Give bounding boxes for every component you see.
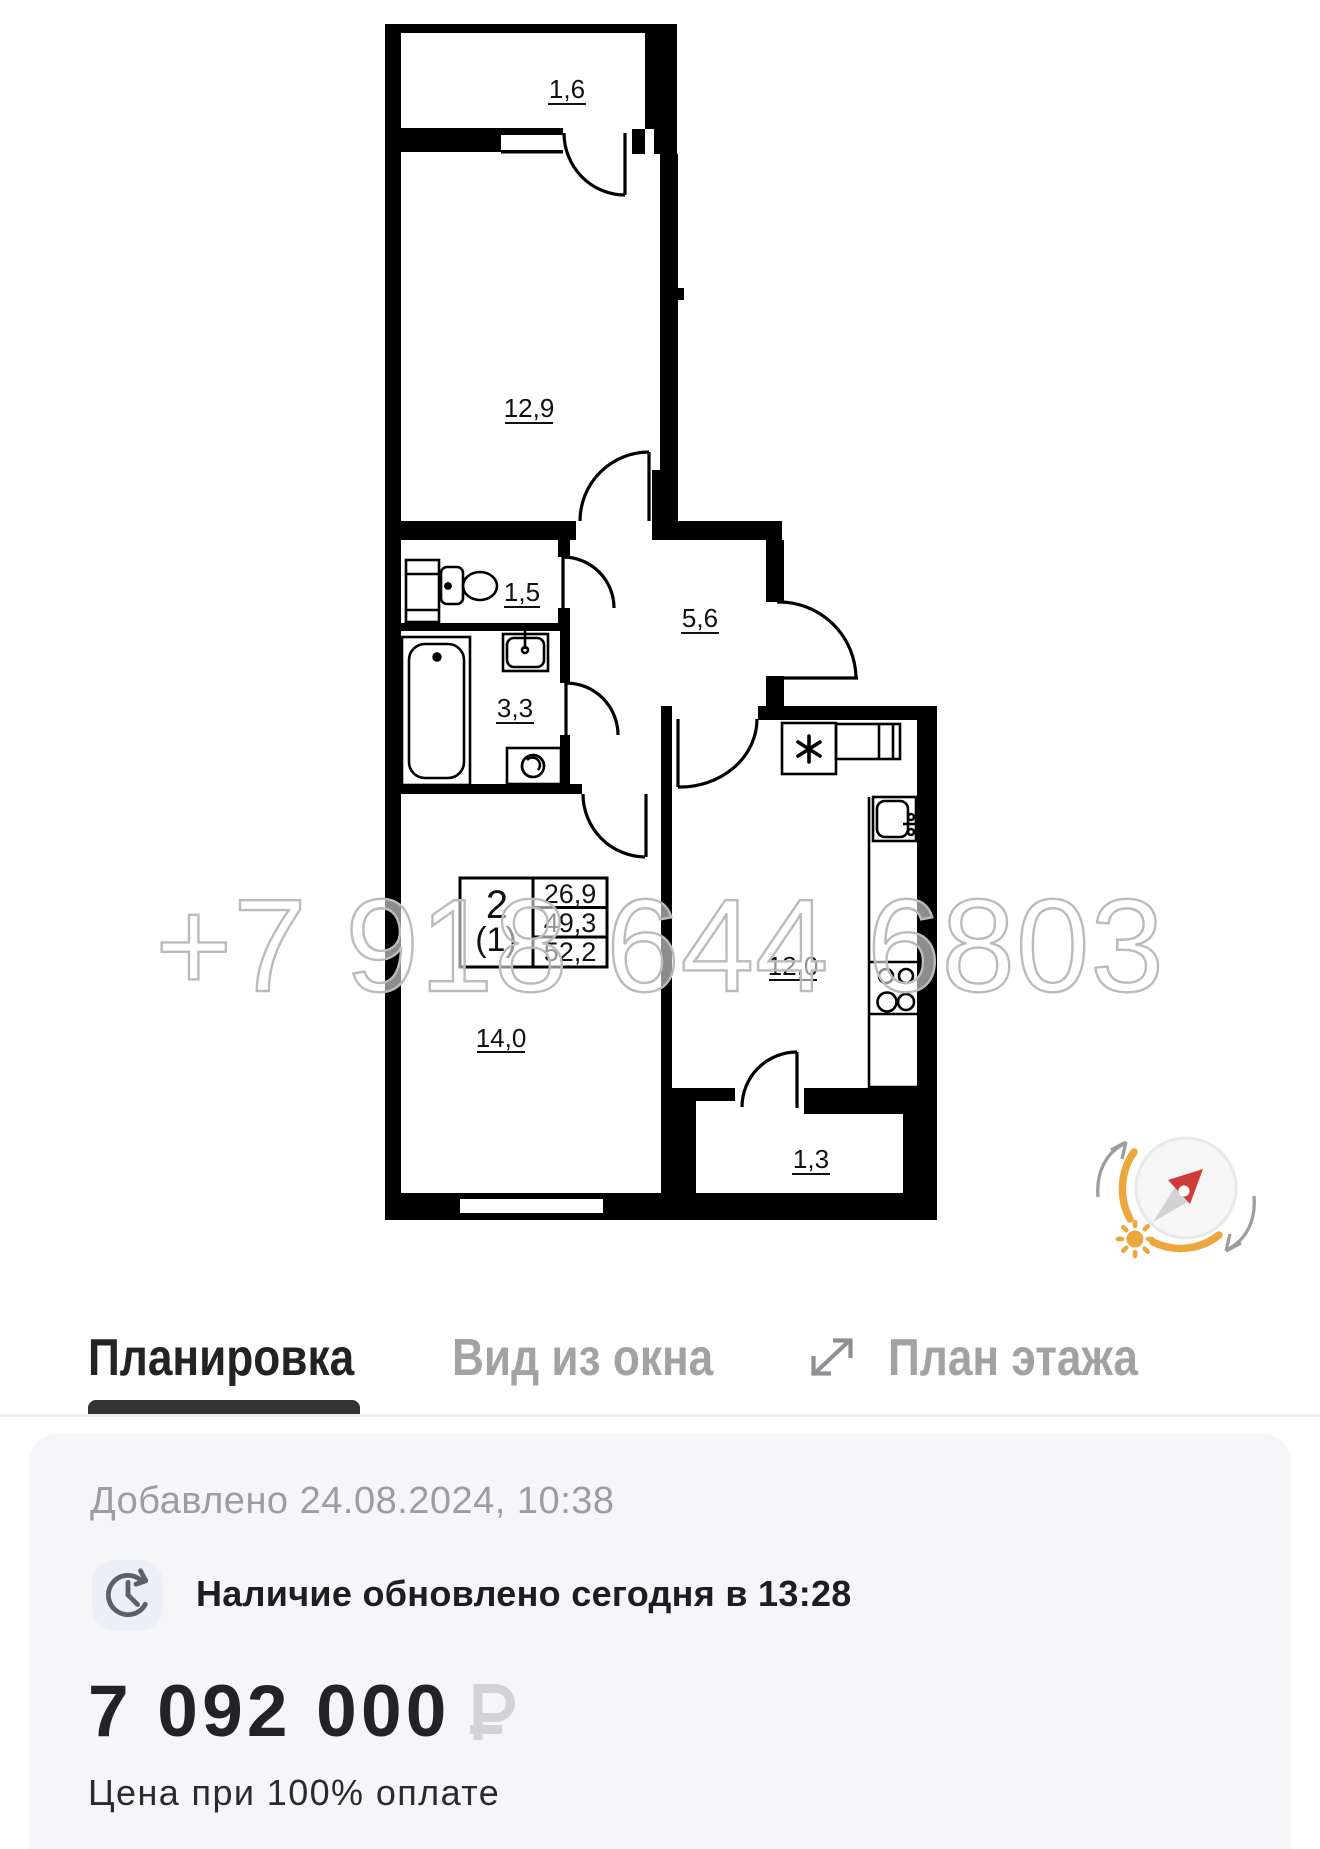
svg-text:1,6: 1,6 [549,74,585,104]
svg-text:12,9: 12,9 [504,393,555,423]
svg-text:5,6: 5,6 [682,603,718,633]
svg-text:1,5: 1,5 [504,577,540,607]
svg-text:1,3: 1,3 [793,1144,829,1174]
svg-text:3,3: 3,3 [497,693,533,723]
svg-text:+7 918 644 6803: +7 918 644 6803 [155,872,1165,1019]
svg-text:14,0: 14,0 [476,1023,527,1053]
